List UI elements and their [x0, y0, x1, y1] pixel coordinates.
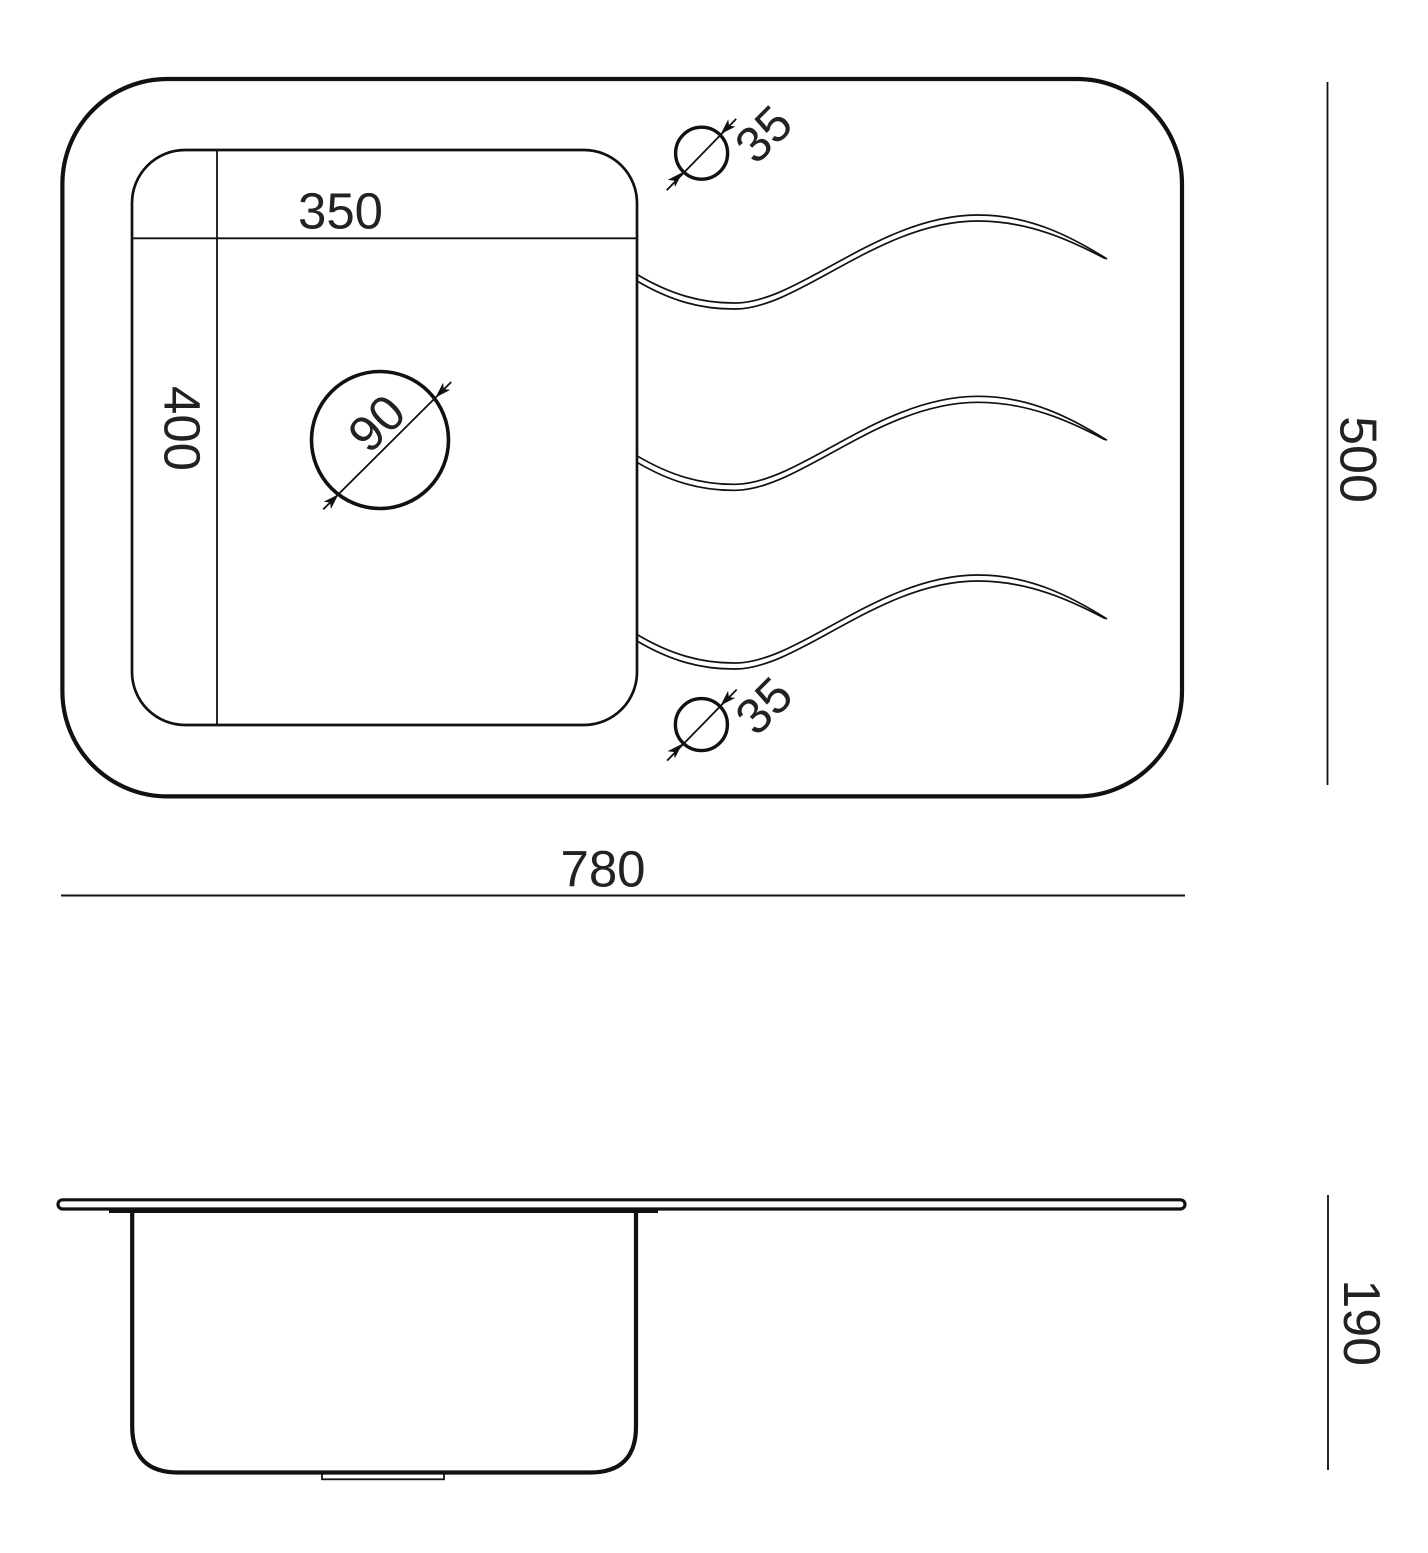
- svg-text:190: 190: [1332, 1279, 1390, 1366]
- svg-text:780: 780: [560, 840, 645, 897]
- svg-text:500: 500: [1329, 416, 1387, 503]
- svg-text:350: 350: [298, 183, 383, 240]
- svg-text:400: 400: [154, 386, 211, 471]
